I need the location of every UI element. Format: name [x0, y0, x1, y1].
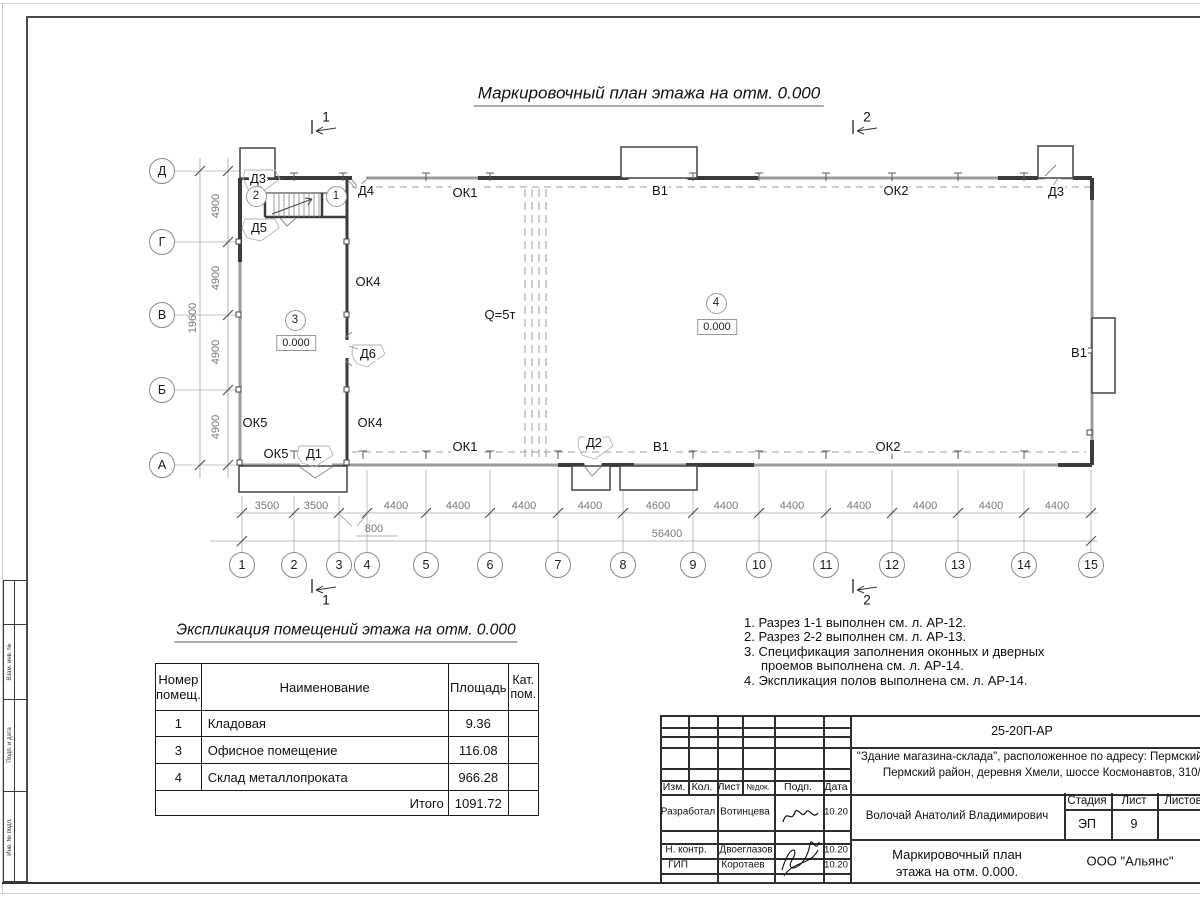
dim-x-3: 4400: [384, 500, 408, 512]
room-area-cell: 9.36: [448, 711, 508, 737]
axis-col-1: 1: [229, 552, 255, 578]
axis-row-b: Б: [149, 377, 175, 403]
door-mark-d3-topleft: Д3: [249, 172, 267, 186]
section-1-top: 1: [322, 111, 330, 126]
window-mark-ok5-bottom: ОК5: [263, 447, 290, 461]
room-cat-cell: [508, 764, 538, 791]
dim-x-6: 4400: [578, 500, 602, 512]
dim-y-3: 4900: [210, 340, 222, 364]
explication-row: 4 Склад металлопроката 966.28: [156, 764, 539, 791]
gate-mark-v1-right: В1: [1070, 346, 1088, 360]
axis-col-11: 11: [813, 552, 839, 578]
window-mark-ok4-upper: ОК4: [355, 275, 382, 289]
room-name-cell: Склад металлопроката: [201, 764, 448, 791]
axis-col-15: 15: [1078, 552, 1104, 578]
drawing-sheet: { "plan": { "title": "Маркировочный план…: [0, 0, 1200, 900]
door-mark-d4: Д4: [357, 184, 375, 198]
axis-col-7: 7: [545, 552, 571, 578]
gate-mark-v1-bottom: В1: [652, 440, 670, 454]
window-mark-ok2-bottom: ОК2: [875, 440, 902, 454]
window-mark-ok1-bottom: ОК1: [452, 440, 479, 454]
elevation-mark-room3: 0.000: [276, 335, 316, 351]
explication-row: 1 Кладовая 9.36: [156, 711, 539, 737]
notes-list: 1. Разрез 1-1 выполнен см. л. АР-12. 2. …: [744, 616, 1056, 688]
dim-y-1: 4900: [210, 194, 222, 218]
window-mark-ok1-top: ОК1: [452, 186, 479, 200]
door-mark-d5: Д5: [250, 221, 268, 235]
section-2-bottom: 2: [863, 594, 871, 609]
axis-col-12: 12: [879, 552, 905, 578]
axis-col-13: 13: [945, 552, 971, 578]
dim-x-13: 4400: [1045, 500, 1069, 512]
explication-row: 3 Офисное помещение 116.08: [156, 737, 539, 764]
explication-total-label: Итого: [156, 791, 449, 816]
dim-x-9: 4400: [780, 500, 804, 512]
note-item-4: 4. Экспликация полов выполнена см. л. АР…: [744, 674, 1056, 688]
room-bubble-1: 1: [326, 186, 347, 207]
dim-x-11: 4400: [913, 500, 937, 512]
axis-col-5: 5: [413, 552, 439, 578]
door-mark-d6: Д6: [359, 347, 377, 361]
axis-row-g: Г: [149, 229, 175, 255]
dim-y-total: 19600: [187, 303, 199, 334]
dim-y-2: 4900: [210, 266, 222, 290]
axis-col-8: 8: [610, 552, 636, 578]
dim-x-offset-800: 800: [365, 523, 383, 535]
room-name-cell: Кладовая: [201, 711, 448, 737]
axis-row-d: Д: [149, 158, 175, 184]
axis-col-4: 4: [354, 552, 380, 578]
axis-col-3: 3: [326, 552, 352, 578]
note-item-3: 3. Спецификация заполнения оконных и две…: [744, 645, 1056, 674]
note-item-1: 1. Разрез 1-1 выполнен см. л. АР-12.: [744, 616, 1056, 630]
door-mark-d2: Д2: [585, 436, 603, 450]
explication-total-cat: [508, 791, 538, 816]
explication-header-cat: Кат. пом.: [508, 664, 538, 711]
dim-x-8: 4400: [714, 500, 738, 512]
axis-col-6: 6: [477, 552, 503, 578]
section-2-top: 2: [863, 111, 871, 126]
window-mark-ok4-lower: ОК4: [357, 416, 384, 430]
explication-table: Номер помещ. Наименование Площадь Кат. п…: [155, 663, 539, 816]
explication-total-row: Итого 1091.72: [156, 791, 539, 816]
note-item-2: 2. Разрез 2-2 выполнен см. л. АР-13.: [744, 630, 1056, 644]
dim-x-5: 4400: [512, 500, 536, 512]
axis-row-a: А: [149, 452, 175, 478]
explication-header-area: Площадь: [448, 664, 508, 711]
axis-col-10: 10: [746, 552, 772, 578]
dim-x-12: 4400: [979, 500, 1003, 512]
room-cat-cell: [508, 737, 538, 764]
door-mark-d1: Д1: [305, 447, 323, 461]
room-bubble-2: 2: [246, 186, 267, 207]
dim-x-1: 3500: [255, 500, 279, 512]
room-cat-cell: [508, 711, 538, 737]
door-mark-d3-topright: Д3: [1047, 185, 1065, 199]
room-number-cell: 3: [156, 737, 202, 764]
room-area-cell: 116.08: [448, 737, 508, 764]
room-bubble-3: 3: [285, 310, 306, 331]
explication-header-number: Номер помещ.: [156, 664, 202, 711]
axis-row-v: В: [149, 302, 175, 328]
dim-y-4: 4900: [210, 415, 222, 439]
dim-x-4: 4400: [446, 500, 470, 512]
room-bubble-4: 4: [706, 293, 727, 314]
axis-col-9: 9: [680, 552, 706, 578]
dim-x-7: 4600: [646, 500, 670, 512]
window-mark-ok2-top: ОК2: [883, 184, 910, 198]
dim-x-2: 3500: [304, 500, 328, 512]
axis-col-14: 14: [1011, 552, 1037, 578]
elevation-mark-room4: 0.000: [697, 319, 737, 335]
room-area-cell: 966.28: [448, 764, 508, 791]
room-number-cell: 1: [156, 711, 202, 737]
room-name-cell: Офисное помещение: [201, 737, 448, 764]
gate-mark-v1-top: В1: [651, 184, 669, 198]
explication-total-value: 1091.72: [448, 791, 508, 816]
explication-header-name: Наименование: [201, 664, 448, 711]
explication-title: Экспликация помещений этажа на отм. 0.00…: [174, 622, 517, 643]
axis-col-2: 2: [281, 552, 307, 578]
room-number-cell: 4: [156, 764, 202, 791]
section-1-bottom: 1: [322, 594, 330, 609]
dim-x-total: 56400: [652, 528, 683, 540]
window-mark-ok5-left: ОК5: [242, 416, 269, 430]
crane-capacity-label: Q=5т: [484, 308, 517, 322]
dim-x-10: 4400: [847, 500, 871, 512]
